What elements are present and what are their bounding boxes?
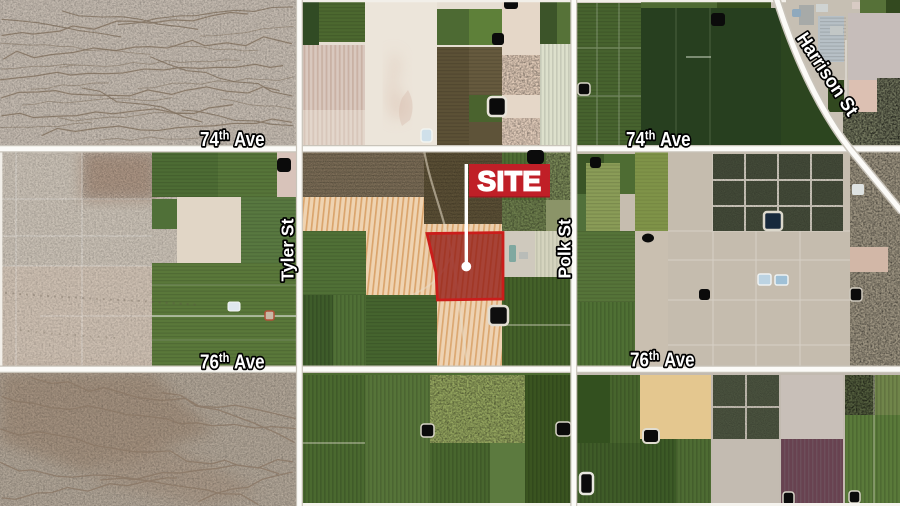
svg-text:74th Ave: 74th Ave bbox=[626, 128, 691, 151]
svg-text:SITE: SITE bbox=[477, 166, 541, 197]
svg-text:Polk St: Polk St bbox=[555, 219, 575, 278]
svg-text:76th Ave: 76th Ave bbox=[630, 348, 695, 371]
svg-text:Tyler St: Tyler St bbox=[278, 218, 298, 281]
svg-text:74th Ave: 74th Ave bbox=[200, 128, 265, 151]
svg-text:76th Ave: 76th Ave bbox=[200, 350, 265, 373]
